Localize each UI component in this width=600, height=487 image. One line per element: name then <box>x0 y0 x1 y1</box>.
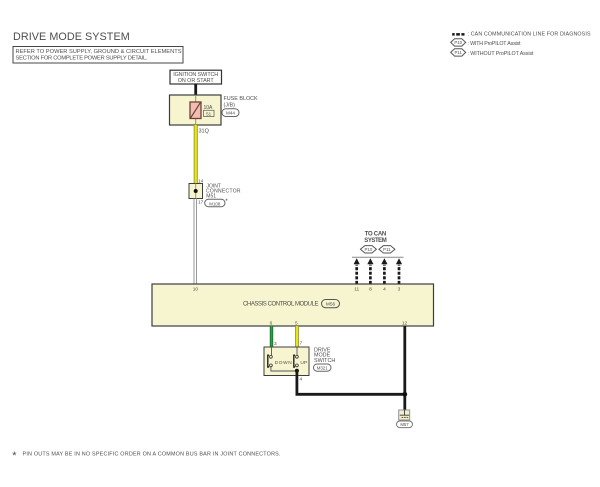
svg-text:M44: M44 <box>226 110 235 115</box>
svg-text:11: 11 <box>354 286 359 292</box>
svg-text:M108: M108 <box>209 201 221 206</box>
svg-text:: WITHOUT ProPILOT Assist: : WITHOUT ProPILOT Assist <box>468 51 535 57</box>
svg-text:M56: M56 <box>326 302 336 308</box>
svg-text:6: 6 <box>270 321 273 327</box>
svg-text:: WITH ProPILOT Assist: : WITH ProPILOT Assist <box>468 41 522 47</box>
svg-text:SECTION FOR COMPLETE POWER SUP: SECTION FOR COMPLETE POWER SUPPLY DETAIL… <box>16 56 148 62</box>
svg-text:4: 4 <box>300 376 303 382</box>
svg-text:(J/B): (J/B) <box>224 103 236 109</box>
svg-text:12: 12 <box>402 321 408 327</box>
svg-text:FUSE BLOCK: FUSE BLOCK <box>224 96 259 102</box>
svg-text:5: 5 <box>295 321 298 327</box>
svg-text:P11: P11 <box>455 50 463 55</box>
svg-text:PIN OUTS MAY BE IN NO SPECIFIC: PIN OUTS MAY BE IN NO SPECIFIC ORDER ON … <box>23 451 281 457</box>
svg-text:M321: M321 <box>317 365 329 370</box>
svg-text:CHASSIS CONTROL MODULE: CHASSIS CONTROL MODULE <box>243 302 319 308</box>
svg-text:SWITCH: SWITCH <box>314 358 335 364</box>
svg-text:SYSTEM: SYSTEM <box>364 238 387 244</box>
svg-text:P10: P10 <box>364 247 372 252</box>
svg-text:DRIVE MODE SYSTEM: DRIVE MODE SYSTEM <box>13 31 130 43</box>
svg-text:TO CAN: TO CAN <box>365 232 387 238</box>
svg-text:UP: UP <box>300 360 307 366</box>
svg-text:REFER TO POWER SUPPLY, GROUND: REFER TO POWER SUPPLY, GROUND & CIRCUIT … <box>16 49 182 55</box>
svg-text:51: 51 <box>206 111 212 116</box>
svg-text:3: 3 <box>274 341 277 347</box>
svg-text:M57: M57 <box>400 422 409 427</box>
svg-text:8: 8 <box>369 286 372 292</box>
svg-text:7: 7 <box>300 340 303 346</box>
svg-text:10: 10 <box>193 286 199 292</box>
svg-text:*: * <box>12 450 17 462</box>
svg-text:DOWN: DOWN <box>275 360 293 366</box>
svg-text:: CAN COMMUNICATION LINE FOR D: : CAN COMMUNICATION LINE FOR DIAGNOSIS <box>468 32 591 38</box>
svg-text:31Q: 31Q <box>199 128 210 134</box>
svg-text:P11: P11 <box>383 247 391 252</box>
svg-text:P10: P10 <box>454 40 462 45</box>
svg-text:4: 4 <box>383 286 386 292</box>
svg-text:17: 17 <box>198 199 204 205</box>
svg-text:ON OR START: ON OR START <box>178 78 215 84</box>
svg-text:3: 3 <box>398 286 401 292</box>
